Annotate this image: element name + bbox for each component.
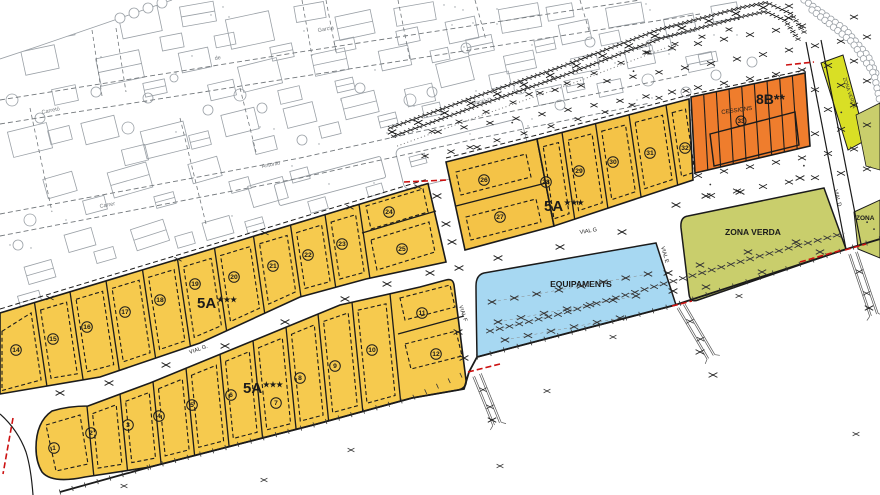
svg-text:20: 20 — [230, 274, 238, 281]
svg-text:de: de — [214, 55, 221, 62]
svg-text:1: 1 — [52, 445, 56, 452]
svg-text:16: 16 — [83, 324, 91, 331]
svg-text:11: 11 — [418, 310, 425, 317]
svg-text:15: 15 — [49, 336, 57, 343]
svg-text:8: 8 — [298, 375, 302, 382]
svg-text:EQUIPAMENTS: EQUIPAMENTS — [550, 279, 612, 289]
svg-text:21: 21 — [269, 263, 277, 270]
svg-text:31: 31 — [646, 150, 654, 157]
svg-text:14: 14 — [12, 347, 20, 354]
svg-text:24: 24 — [385, 209, 393, 216]
svg-text:5: 5 — [190, 402, 194, 409]
svg-text:8B**: 8B** — [756, 91, 785, 107]
svg-text:22: 22 — [304, 252, 312, 259]
svg-text:27: 27 — [496, 214, 504, 221]
svg-text:2: 2 — [89, 430, 93, 437]
svg-text:ZONA VERDA: ZONA VERDA — [725, 227, 781, 237]
svg-text:17: 17 — [121, 309, 129, 316]
svg-text:30: 30 — [609, 159, 617, 166]
svg-text:9: 9 — [333, 363, 337, 370]
svg-text:6: 6 — [229, 392, 233, 399]
svg-text:18: 18 — [156, 297, 164, 304]
svg-text:32: 32 — [681, 145, 689, 152]
svg-text:33: 33 — [737, 118, 745, 125]
svg-text:12: 12 — [432, 351, 440, 358]
svg-text:7: 7 — [274, 400, 278, 407]
svg-text:5A: 5A — [544, 198, 563, 215]
svg-text:ZONA: ZONA — [856, 215, 875, 222]
svg-text:28: 28 — [542, 179, 550, 186]
svg-text:4: 4 — [157, 413, 161, 420]
svg-text:26: 26 — [480, 177, 488, 184]
svg-text:25: 25 — [398, 246, 406, 253]
svg-text:3: 3 — [126, 422, 130, 429]
svg-text:10: 10 — [368, 347, 376, 354]
svg-text:19: 19 — [191, 281, 199, 288]
svg-text:23: 23 — [338, 241, 346, 248]
svg-text:29: 29 — [575, 168, 583, 175]
svg-text:5A: 5A — [197, 295, 216, 312]
